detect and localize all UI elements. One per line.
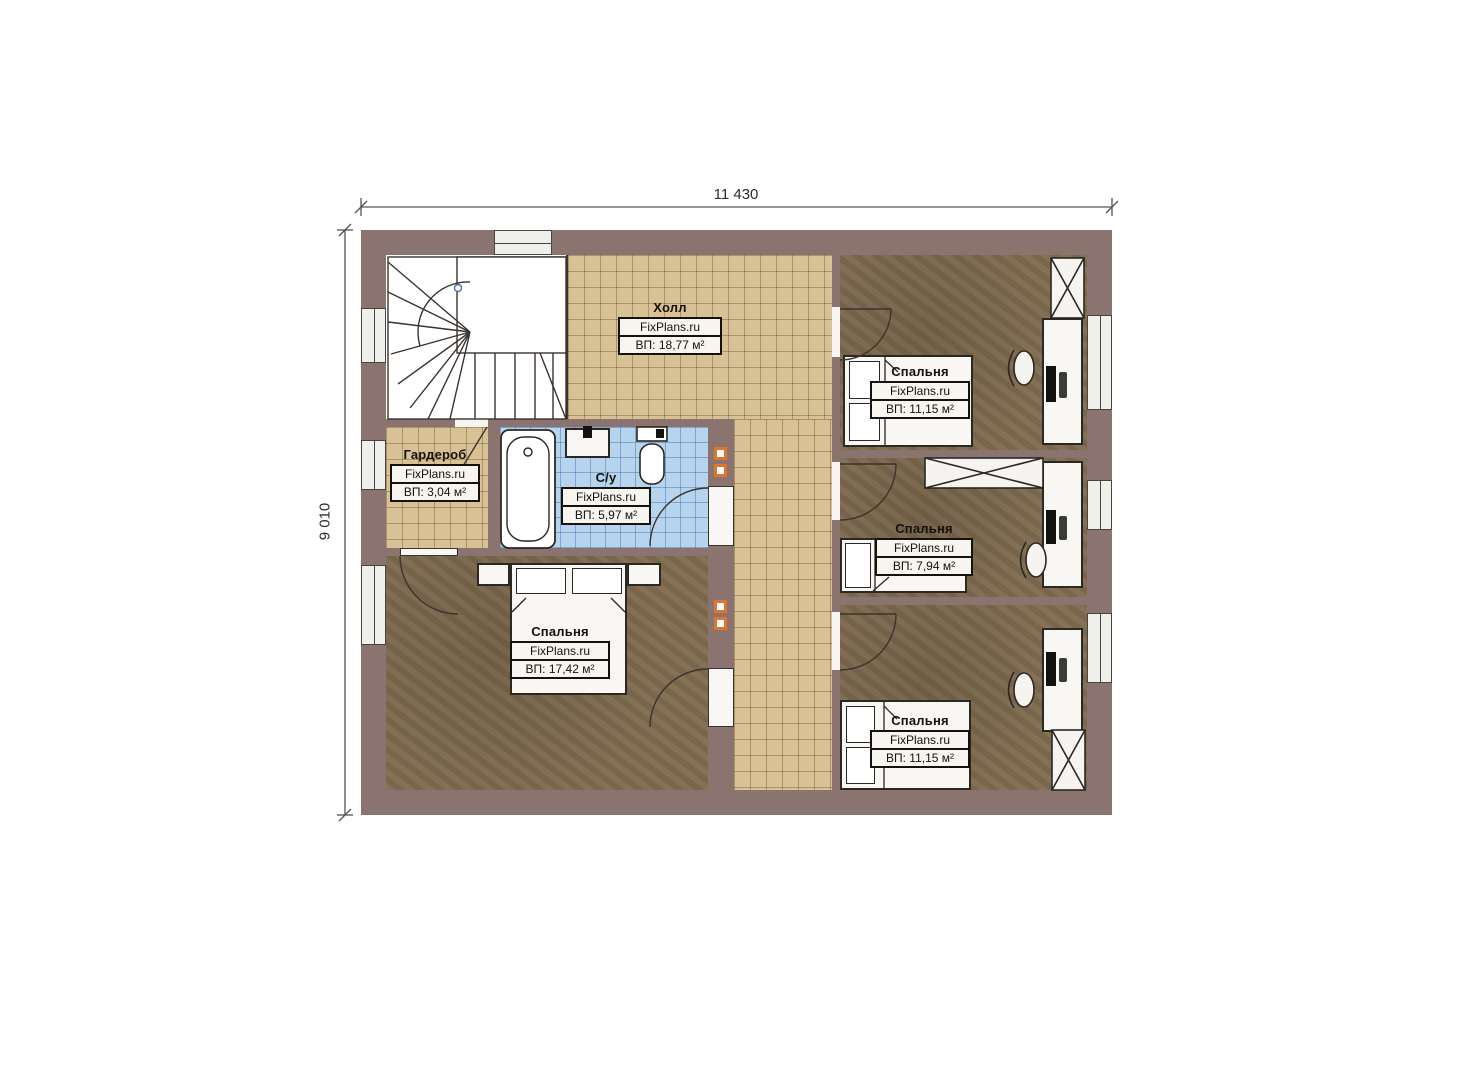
room-label-bedroom-middle: Спальня FixPlans.ru ВП: 7,94 м²	[875, 521, 973, 576]
brand-watermark: FixPlans.ru	[620, 319, 720, 335]
floor-plan-canvas: 11 430 9 010 Холл FixPlans.ru ВП: 18,77 …	[0, 0, 1473, 1080]
pillow	[516, 568, 566, 594]
wall-hall-bathroom	[386, 419, 734, 427]
dimension-label-height: 9 010	[317, 492, 334, 552]
room-label-bathroom: С/у FixPlans.ru ВП: 5,97 м²	[561, 470, 651, 525]
wall-outer-bottom	[361, 790, 1112, 815]
keyboard-icon	[1059, 658, 1067, 682]
door-opening-wardrobe	[455, 419, 488, 427]
room-label-bedroom-bottom: Спальня FixPlans.ru ВП: 11,15 м²	[870, 713, 970, 768]
vent-shaft-icon	[714, 447, 727, 460]
room-name: С/у	[561, 470, 651, 485]
room-name: Спальня	[510, 624, 610, 639]
window-top	[494, 230, 552, 255]
stairwell-floor	[386, 255, 568, 419]
room-name: Холл	[618, 300, 722, 315]
room-label-hall: Холл FixPlans.ru ВП: 18,77 м²	[618, 300, 722, 355]
window-left-wardrobe	[361, 440, 386, 490]
keyboard-icon	[1059, 516, 1067, 540]
brand-watermark: FixPlans.ru	[512, 643, 608, 659]
window-left-stairs	[361, 308, 386, 363]
door-opening-bedroom-top	[832, 307, 840, 357]
room-label-master-bedroom: Спальня FixPlans.ru ВП: 17,42 м²	[510, 624, 610, 679]
room-area: ВП: 18,77 м²	[620, 335, 720, 353]
window-right-middle	[1087, 480, 1112, 530]
brand-watermark: FixPlans.ru	[872, 383, 968, 399]
room-label-wardrobe: Гардероб FixPlans.ru ВП: 3,04 м²	[390, 447, 480, 502]
window-right-bottom	[1087, 613, 1112, 683]
pillow	[572, 568, 622, 594]
room-name: Спальня	[875, 521, 973, 536]
wall-wardrobe-bathroom	[488, 427, 500, 548]
vent-shaft-icon	[714, 600, 727, 613]
dimension-line-left	[337, 224, 353, 821]
room-name: Спальня	[870, 364, 970, 379]
room-area: ВП: 3,04 м²	[392, 482, 478, 500]
vent-shaft-icon	[714, 617, 727, 630]
room-label-bedroom-top: Спальня FixPlans.ru ВП: 11,15 м²	[870, 364, 970, 419]
computer-monitor-icon	[1046, 510, 1056, 544]
window-left-master	[361, 565, 386, 645]
window-right-top	[1087, 315, 1112, 410]
pillow	[845, 543, 871, 588]
room-area: ВП: 11,15 м²	[872, 748, 968, 766]
wall-outer-top	[361, 230, 1112, 255]
keyboard-icon	[1059, 372, 1067, 398]
door-leaf-master-top	[400, 548, 458, 556]
stairs-hall-boundary	[566, 255, 568, 419]
room-area: ВП: 17,42 м²	[512, 659, 608, 677]
room-name: Гардероб	[390, 447, 480, 462]
room-area: ВП: 7,94 м²	[877, 556, 971, 574]
wall-bedrooms-divider-2	[840, 597, 1087, 605]
room-area: ВП: 5,97 м²	[563, 505, 649, 523]
door-opening-bedroom-middle	[832, 462, 840, 520]
dimension-label-width: 11 430	[686, 186, 786, 203]
computer-monitor-icon	[1046, 652, 1056, 686]
door-leaf-bathroom	[708, 486, 734, 546]
brand-watermark: FixPlans.ru	[392, 466, 478, 482]
door-leaf-master-right	[708, 668, 734, 727]
brand-watermark: FixPlans.ru	[872, 732, 968, 748]
wall-bedrooms-divider-1	[840, 450, 1087, 458]
brand-watermark: FixPlans.ru	[877, 540, 971, 556]
nightstand	[627, 563, 661, 586]
faucet-icon	[583, 426, 592, 438]
corridor-floor	[734, 419, 832, 790]
room-name: Спальня	[870, 713, 970, 728]
computer-monitor-icon	[1046, 366, 1056, 402]
brand-watermark: FixPlans.ru	[563, 489, 649, 505]
nightstand	[477, 563, 510, 586]
door-opening-bedroom-bottom	[832, 612, 840, 670]
vent-shaft-icon	[714, 464, 727, 477]
room-area: ВП: 11,15 м²	[872, 399, 968, 417]
